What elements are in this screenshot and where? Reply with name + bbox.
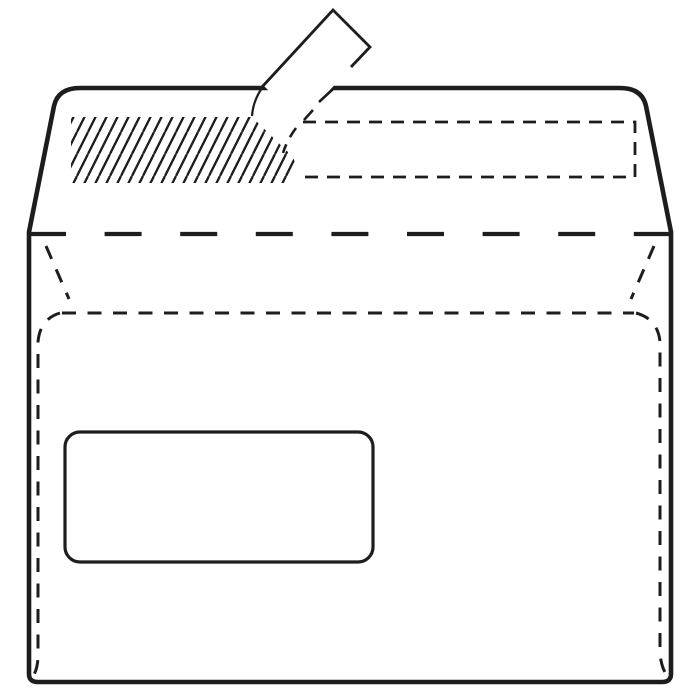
address-window (65, 432, 373, 562)
curl-dashed-curve (283, 128, 296, 153)
envelope-line-art-canvas (0, 0, 700, 700)
right-side-seam (636, 313, 671, 680)
inner-flap-seams (30, 246, 671, 680)
strip-liner-dashed-outline (302, 122, 635, 177)
left-side-flap-edge (46, 246, 69, 299)
envelope-diagram (0, 0, 700, 700)
left-side-seam (30, 313, 60, 680)
envelope-line-art (29, 10, 671, 682)
adhesive-strip-hatched-area (71, 117, 295, 183)
right-side-flap-edge (631, 246, 654, 299)
peel-front-left-curve (252, 88, 262, 116)
